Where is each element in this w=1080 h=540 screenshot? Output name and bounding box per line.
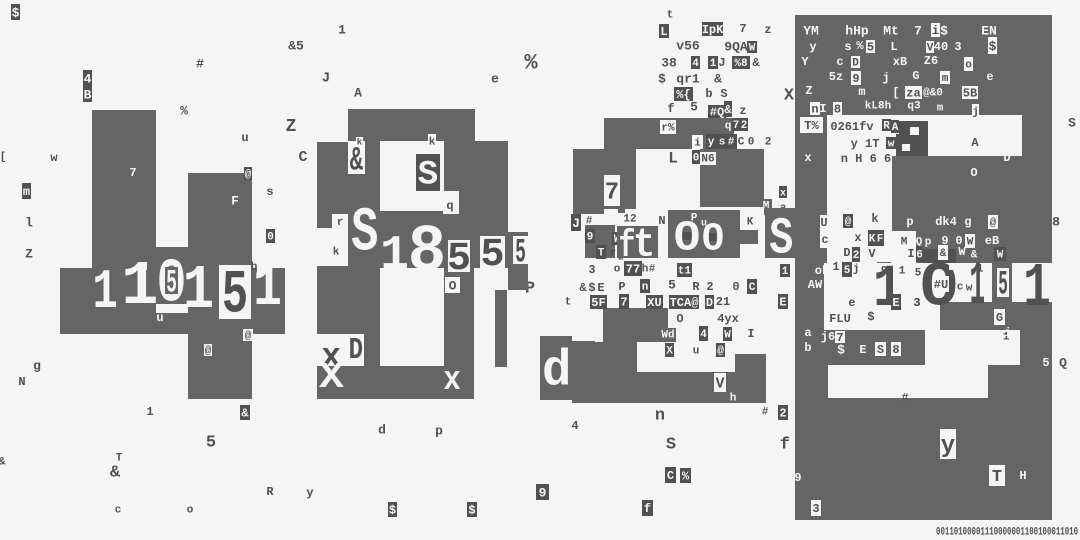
svg-text:F: F (877, 234, 884, 246)
svg-text:Mt: Mt (883, 23, 899, 38)
svg-text:2: 2 (706, 280, 713, 294)
svg-text:q3: q3 (907, 101, 921, 113)
svg-text:s: s (844, 40, 851, 54)
svg-text:R: R (883, 121, 890, 133)
svg-text:$: $ (940, 23, 948, 38)
svg-text:#U: #U (934, 278, 948, 292)
svg-text:I: I (819, 102, 826, 116)
svg-text:1: 1 (338, 22, 346, 37)
svg-text:E: E (597, 281, 604, 295)
svg-text:v56: v56 (676, 38, 700, 53)
svg-text:&5: &5 (288, 38, 304, 53)
svg-text:W: W (997, 250, 1004, 262)
svg-text:y: y (809, 40, 816, 54)
svg-text:&: & (752, 56, 760, 70)
svg-text:0: 0 (748, 137, 755, 149)
svg-text:k: k (871, 212, 878, 226)
svg-text:Z: Z (25, 246, 33, 261)
svg-text:3: 3 (913, 296, 920, 310)
svg-text:S: S (877, 343, 884, 357)
svg-text:1: 1 (710, 58, 717, 70)
svg-text:5: 5 (867, 41, 874, 55)
svg-text:D: D (852, 58, 859, 70)
svg-text:XU: XU (647, 296, 661, 310)
svg-text:h: h (730, 393, 737, 405)
svg-text:5: 5 (998, 267, 1008, 305)
svg-text:A: A (892, 122, 899, 134)
svg-text:ok: ok (815, 264, 829, 278)
svg-text:m: m (937, 103, 944, 115)
svg-text:9: 9 (539, 485, 547, 500)
svg-text:X: X (666, 346, 673, 358)
svg-text:0261fv: 0261fv (830, 120, 873, 134)
svg-text:40: 40 (934, 40, 948, 54)
svg-text:r%: r% (661, 123, 675, 135)
svg-text:5B: 5B (963, 87, 977, 101)
svg-text:TCA@: TCA@ (670, 296, 699, 310)
svg-text:b: b (804, 341, 811, 355)
svg-text:g: g (33, 358, 41, 373)
svg-text:j: j (882, 71, 889, 85)
svg-text:b: b (251, 262, 258, 274)
svg-text:3: 3 (588, 263, 595, 277)
svg-text:1: 1 (121, 251, 158, 322)
svg-text:z: z (739, 104, 746, 118)
svg-text:1: 1 (873, 256, 903, 323)
svg-text:#: # (586, 216, 593, 228)
svg-text:e: e (986, 70, 993, 84)
svg-text:&: & (724, 103, 732, 117)
svg-text:kL8h: kL8h (865, 101, 891, 113)
svg-text:n: n (655, 407, 665, 426)
svg-text:1: 1 (380, 229, 409, 283)
svg-text:D: D (706, 296, 713, 310)
svg-text:l: l (25, 215, 33, 230)
svg-text:X: X (784, 87, 795, 106)
svg-text:@&0: @&0 (923, 88, 943, 100)
svg-text:@: @ (990, 218, 997, 230)
svg-text:O: O (449, 278, 457, 293)
svg-text:J: J (718, 56, 725, 70)
svg-text:q: q (446, 199, 453, 213)
svg-text:S: S (1068, 115, 1076, 130)
svg-text:hHp: hHp (845, 23, 869, 38)
svg-text:#: # (649, 264, 656, 276)
svg-text:7: 7 (129, 166, 136, 180)
svg-text:x: x (804, 151, 811, 165)
svg-text:V: V (715, 375, 724, 392)
svg-text:d: d (542, 343, 571, 400)
svg-text:m: m (942, 73, 949, 85)
svg-text:T: T (598, 248, 605, 260)
svg-text:w: w (888, 139, 895, 151)
svg-text:5: 5 (1042, 356, 1049, 370)
svg-text:n: n (642, 282, 649, 294)
svg-text:n: n (811, 103, 818, 117)
svg-text:1: 1 (832, 260, 839, 274)
svg-text:$: $ (468, 504, 475, 518)
svg-text:0: 0 (732, 280, 739, 294)
svg-text:u: u (241, 131, 248, 145)
svg-text:0: 0 (693, 153, 700, 165)
svg-text:d: d (378, 422, 386, 437)
svg-text:[: [ (0, 152, 6, 164)
svg-text:W: W (724, 330, 731, 342)
svg-text:z: z (764, 23, 771, 37)
svg-text:g: g (964, 215, 971, 229)
svg-text:c: c (957, 282, 964, 294)
svg-text:o: o (187, 505, 194, 517)
svg-text:i: i (694, 138, 701, 150)
svg-text:5: 5 (690, 99, 698, 114)
svg-text:G: G (996, 311, 1003, 325)
svg-text:$: $ (989, 39, 997, 54)
svg-text:%: % (682, 470, 690, 484)
svg-text:p: p (906, 215, 913, 229)
svg-text:Y: Y (801, 55, 809, 69)
svg-text:C: C (298, 149, 307, 166)
svg-text:D: D (843, 246, 850, 260)
svg-text:f: f (644, 502, 651, 516)
svg-text:O: O (970, 166, 977, 180)
svg-text:N: N (658, 214, 665, 228)
svg-text:Z: Z (805, 84, 812, 98)
svg-text:&: & (971, 250, 978, 262)
svg-text:f: f (780, 436, 790, 455)
svg-text:r: r (610, 248, 616, 259)
svg-text:#Q: #Q (710, 106, 724, 120)
svg-text:k: k (429, 137, 436, 149)
svg-text:S: S (418, 157, 438, 195)
svg-text:j6: j6 (821, 330, 835, 344)
svg-text:5: 5 (515, 234, 526, 273)
svg-text:t: t (565, 297, 572, 309)
svg-text:2: 2 (779, 407, 786, 421)
svg-text:#: # (196, 56, 204, 71)
svg-text:77: 77 (626, 263, 640, 277)
svg-text:B: B (84, 87, 92, 102)
svg-text:9: 9 (852, 72, 859, 86)
svg-text:w: w (966, 283, 973, 295)
svg-text:t1: t1 (678, 266, 692, 278)
svg-text:%: % (524, 50, 538, 75)
svg-text:5: 5 (844, 265, 851, 277)
svg-text:R: R (692, 280, 700, 294)
svg-text:7: 7 (739, 22, 746, 36)
svg-text:i: i (1004, 326, 1011, 340)
svg-text:p: p (435, 423, 443, 438)
svg-text:%8: %8 (734, 58, 748, 70)
svg-text:c: c (115, 505, 122, 517)
svg-text:Z: Z (286, 117, 297, 137)
svg-text:y: y (941, 433, 955, 460)
svg-text:O: O (676, 312, 683, 326)
svg-text:a: a (804, 326, 811, 340)
svg-text:8: 8 (834, 103, 841, 117)
svg-text:K: K (869, 234, 876, 246)
svg-text:E: E (779, 296, 786, 310)
svg-text:I: I (907, 247, 914, 261)
svg-text:4yx: 4yx (717, 312, 739, 326)
svg-text:o: o (614, 264, 621, 276)
svg-text:A: A (971, 136, 979, 150)
svg-text:5: 5 (222, 262, 248, 331)
svg-text:G: G (912, 69, 919, 83)
svg-text:m: m (23, 185, 30, 199)
svg-text:w: w (50, 151, 58, 165)
svg-text:FLU: FLU (829, 312, 851, 326)
svg-text:q: q (725, 121, 732, 133)
svg-text:t: t (667, 10, 674, 22)
svg-text:eB: eB (985, 234, 999, 248)
svg-text:#: # (762, 407, 769, 419)
svg-text:r: r (337, 217, 344, 229)
svg-text:W: W (958, 245, 966, 259)
svg-text:S: S (666, 436, 676, 455)
svg-text:%: % (180, 103, 188, 118)
svg-text:7: 7 (620, 296, 627, 310)
svg-text:3: 3 (954, 40, 961, 54)
svg-text:$: $ (658, 71, 666, 86)
svg-text:%: % (856, 39, 864, 53)
svg-text:i: i (932, 24, 939, 38)
svg-text:Wd: Wd (661, 330, 674, 342)
svg-text:s: s (266, 185, 273, 199)
svg-text:1: 1 (1023, 255, 1051, 324)
svg-text:K: K (747, 217, 754, 229)
svg-text:#: # (728, 137, 735, 149)
svg-text:$: $ (867, 310, 874, 324)
svg-text:1: 1 (146, 405, 153, 419)
svg-text:T%: T% (804, 119, 819, 133)
svg-text:za: za (906, 87, 920, 101)
svg-text:j: j (972, 107, 979, 119)
svg-text:J: J (572, 216, 580, 231)
svg-text:U: U (820, 216, 827, 230)
svg-text:F: F (231, 193, 239, 208)
svg-text:&: & (0, 457, 6, 469)
svg-text:L: L (668, 149, 678, 167)
svg-text:C: C (738, 137, 745, 149)
svg-text:u: u (701, 218, 707, 229)
svg-text:5F: 5F (591, 296, 605, 310)
svg-text:1: 1 (92, 261, 117, 324)
svg-text:5: 5 (166, 264, 177, 301)
svg-text:W: W (967, 237, 974, 249)
svg-text:@: @ (245, 331, 252, 343)
svg-text:j: j (853, 264, 860, 276)
svg-text:1: 1 (183, 256, 214, 326)
svg-text:S: S (720, 87, 727, 101)
svg-text:5: 5 (668, 277, 676, 292)
svg-text:C: C (667, 469, 674, 483)
svg-text:AW: AW (808, 278, 823, 292)
svg-text:A: A (354, 85, 362, 100)
svg-text:e: e (848, 296, 855, 310)
svg-text:8: 8 (892, 343, 899, 357)
svg-text:4: 4 (692, 58, 699, 70)
svg-text:YM: YM (803, 23, 819, 38)
svg-text:@: @ (717, 346, 724, 358)
svg-text:x: x (854, 231, 861, 245)
svg-text:E: E (892, 296, 899, 310)
svg-text:$: $ (12, 5, 20, 20)
svg-text:N6: N6 (701, 154, 714, 166)
svg-text:IpK: IpK (702, 23, 724, 37)
svg-text:9QA: 9QA (724, 39, 748, 54)
svg-text:4: 4 (700, 329, 707, 341)
svg-text:$: $ (389, 504, 396, 518)
svg-text:5: 5 (480, 233, 504, 278)
svg-text:7: 7 (733, 120, 740, 132)
svg-text:9: 9 (794, 471, 801, 485)
svg-text:@: @ (205, 346, 212, 358)
svg-text:u: u (156, 311, 163, 325)
svg-text:5: 5 (206, 434, 216, 453)
svg-text:xB: xB (893, 55, 907, 69)
svg-text:x: x (443, 362, 460, 400)
svg-text:L: L (660, 25, 667, 39)
svg-text:D: D (1003, 151, 1010, 165)
svg-text:u: u (693, 346, 700, 358)
svg-text:b: b (705, 87, 712, 101)
svg-text:4: 4 (84, 71, 92, 86)
svg-text:c: c (836, 55, 843, 69)
svg-text:H: H (1019, 469, 1026, 483)
svg-text:J: J (322, 71, 330, 87)
svg-text:&: & (579, 281, 587, 295)
svg-text:y 1T: y 1T (851, 137, 880, 151)
svg-text:Q: Q (1059, 355, 1067, 370)
svg-text:h: h (642, 264, 649, 276)
svg-text:7: 7 (914, 23, 922, 38)
svg-text:%{: %{ (676, 88, 690, 102)
svg-text:k: k (357, 138, 363, 148)
svg-text:P: P (691, 213, 698, 225)
svg-text:&: & (714, 71, 722, 86)
svg-text:E: E (859, 343, 866, 357)
svg-text:o: o (965, 60, 972, 72)
svg-text:&: & (110, 464, 121, 483)
svg-text:N: N (18, 375, 25, 389)
svg-text:Z6: Z6 (924, 54, 938, 68)
svg-text:m: m (858, 85, 865, 99)
svg-text:@: @ (845, 217, 852, 229)
svg-text:1: 1 (782, 266, 789, 278)
svg-text:V: V (927, 43, 934, 55)
svg-text:n H 6 6: n H 6 6 (841, 152, 891, 166)
svg-text:P: P (618, 280, 625, 294)
svg-text:5z: 5z (829, 70, 843, 84)
svg-text:s: s (719, 137, 726, 149)
svg-text:qr1: qr1 (676, 71, 700, 86)
svg-text:21: 21 (716, 295, 730, 309)
svg-text:k: k (333, 247, 340, 259)
svg-text:4: 4 (571, 419, 578, 433)
svg-text:2: 2 (765, 137, 772, 149)
svg-text:8: 8 (1052, 214, 1060, 229)
svg-text:8: 8 (408, 214, 446, 289)
svg-text:dk4: dk4 (935, 215, 957, 229)
svg-text:S: S (351, 199, 378, 268)
svg-text:[: [ (892, 86, 899, 100)
svg-text:0: 0 (267, 232, 274, 244)
svg-text:5: 5 (447, 237, 471, 282)
svg-text:@: @ (245, 169, 252, 181)
svg-text:D: D (349, 334, 363, 368)
svg-text:38: 38 (661, 55, 677, 70)
svg-text:7: 7 (605, 179, 619, 206)
svg-text:p: p (925, 237, 932, 249)
svg-text:c: c (821, 233, 828, 247)
svg-text:$: $ (837, 342, 845, 357)
svg-text:EN: EN (981, 23, 997, 38)
svg-text:001101000011100000011001000110: 00110100001110000001100100011010 (936, 527, 1078, 539)
svg-text:f: f (667, 102, 674, 116)
svg-text:R: R (266, 485, 274, 499)
svg-text:$: $ (588, 281, 595, 295)
svg-text:C: C (749, 282, 756, 294)
svg-text:2: 2 (853, 250, 860, 262)
svg-text:X: X (319, 356, 345, 398)
svg-text:9: 9 (587, 232, 594, 244)
svg-text:y: y (306, 486, 313, 500)
svg-text:e: e (491, 71, 499, 86)
svg-text:&: & (241, 407, 249, 421)
svg-text:y: y (708, 137, 715, 149)
svg-text:W: W (749, 43, 756, 55)
svg-text:2: 2 (741, 120, 748, 132)
svg-text:#: # (901, 391, 908, 405)
svg-text:S: S (769, 210, 793, 268)
svg-text:L: L (890, 40, 897, 54)
svg-text:3: 3 (812, 502, 819, 516)
svg-text:T: T (992, 468, 1002, 487)
svg-text:1: 1 (977, 264, 984, 276)
svg-text:x: x (780, 188, 786, 199)
svg-text:I: I (747, 327, 754, 341)
